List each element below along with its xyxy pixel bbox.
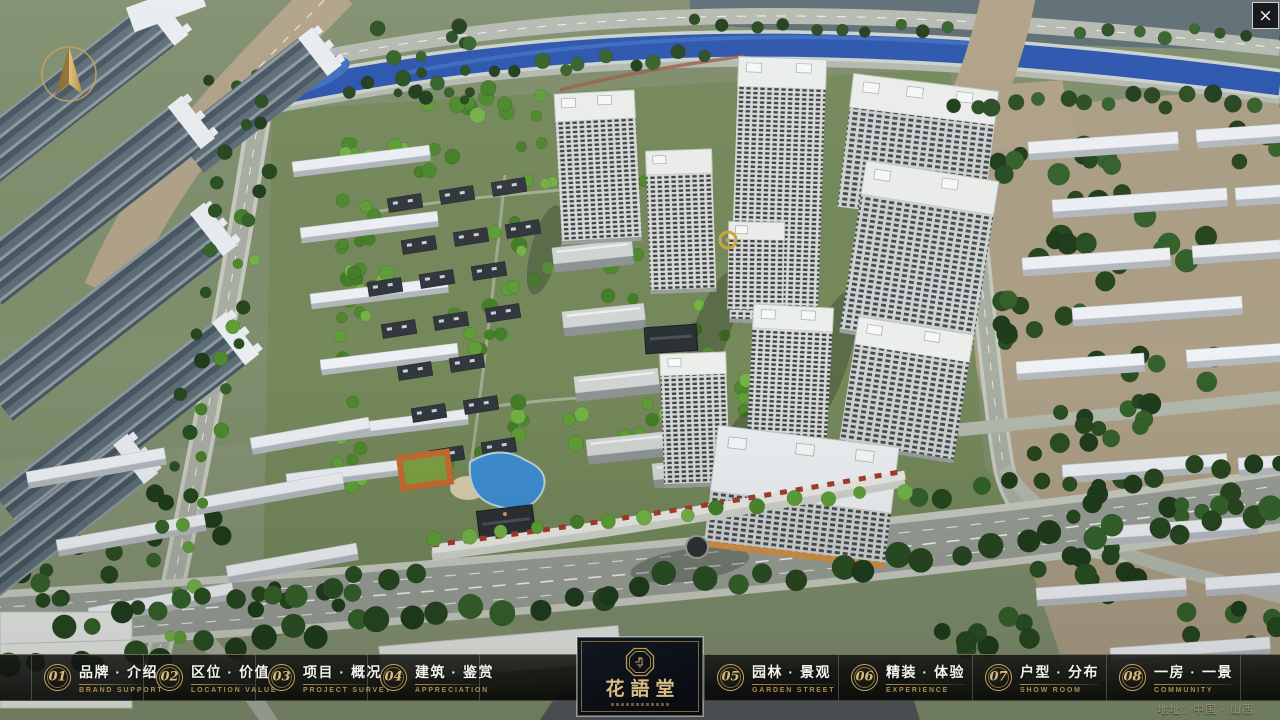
seal-emblem-icon (625, 647, 655, 677)
item-number-badge: 08 (1119, 664, 1146, 691)
nav-item-garden-landscape[interactable]: 05 园林 · 景观 GARDEN STREET (704, 655, 838, 700)
nav-item-architecture-appreciation[interactable]: 04 建筑 · 鉴赏 APPRECIATION (367, 655, 479, 700)
project-address: 地址：中国 · 山西 (1157, 701, 1254, 717)
item-number-badge: 07 (985, 664, 1012, 691)
item-number-badge: 03 (268, 664, 295, 691)
sales-presentation-screen: × 01 品牌 · 介绍 BRAND SUPPORT 02 区位 · 价值 LO… (0, 0, 1280, 720)
nav-group-right: 05 园林 · 景观 GARDEN STREET 06 精装 · 体验 EXPE… (704, 655, 1280, 700)
masterplan-render[interactable] (0, 0, 1280, 720)
project-logo: 花語堂 (577, 637, 703, 716)
item-number-badge: 06 (851, 664, 878, 691)
close-button[interactable]: × (1252, 2, 1279, 29)
nav-separator (1240, 655, 1241, 700)
item-number-badge: 05 (717, 664, 744, 691)
nav-item-project-overview[interactable]: 03 项目 · 概况 PROJECT SURVEY (255, 655, 367, 700)
nav-separator (479, 655, 480, 700)
nav-group-left: 01 品牌 · 介绍 BRAND SUPPORT 02 区位 · 价值 LOCA… (31, 655, 577, 700)
logo-subtitle-line (611, 703, 669, 706)
nav-item-location-value[interactable]: 02 区位 · 价值 LOCATION VALUE (143, 655, 255, 700)
logo-title: 花語堂 (599, 680, 680, 699)
nav-item-brand-intro[interactable]: 01 品牌 · 介绍 BRAND SUPPORT (31, 655, 143, 700)
item-number-badge: 02 (156, 664, 183, 691)
nav-item-interior-experience[interactable]: 06 精装 · 体验 EXPERIENCE (838, 655, 972, 700)
nav-item-unit-distribution[interactable]: 07 户型 · 分布 SHOW ROOM (972, 655, 1106, 700)
item-number-badge: 04 (380, 664, 407, 691)
item-number-badge: 01 (44, 664, 71, 691)
nav-item-room-view[interactable]: 08 一房 · 一景 COMMUNITY (1106, 655, 1240, 700)
